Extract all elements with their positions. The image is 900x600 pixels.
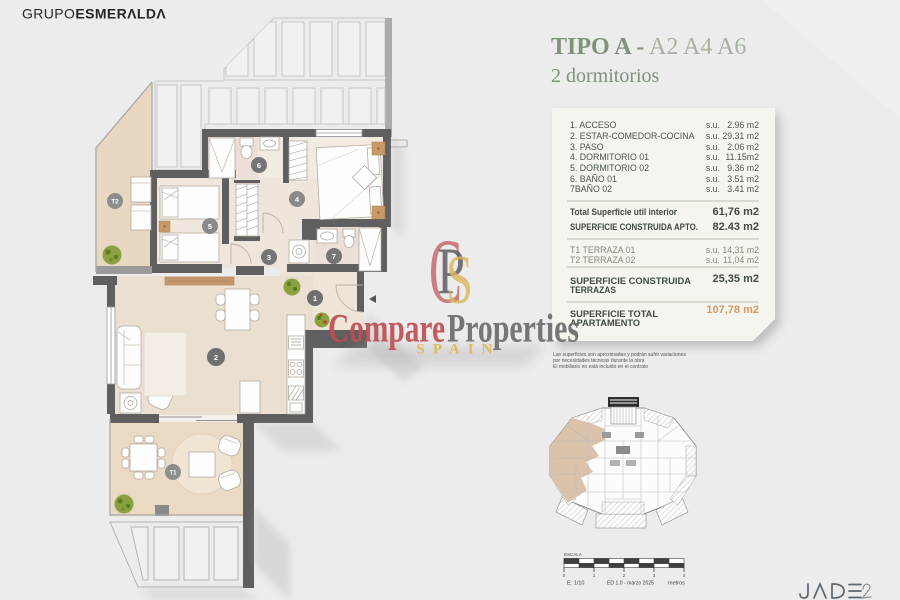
svg-text:7BAÑO 02: 7BAÑO 02 xyxy=(570,184,612,194)
svg-text:s.u.: s.u. xyxy=(706,142,720,152)
svg-text:2. ESTAR-COMEDOR-COCINA: 2. ESTAR-COMEDOR-COCINA xyxy=(570,131,695,141)
svg-text:2 dormitorios: 2 dormitorios xyxy=(551,65,660,87)
svg-text:s.u.: s.u. xyxy=(706,245,720,255)
svg-text:6: 6 xyxy=(257,161,261,170)
svg-text:5: 5 xyxy=(208,222,212,231)
svg-text:82.43 m2: 82.43 m2 xyxy=(713,221,759,233)
svg-text:T1: T1 xyxy=(169,470,177,477)
svg-text:ESCALA: ESCALA xyxy=(564,552,582,557)
svg-text:APARTAMENTO: APARTAMENTO xyxy=(570,318,640,329)
svg-text:4. DORMITORIO 01: 4. DORMITORIO 01 xyxy=(570,152,649,162)
svg-text:s.u.: s.u. xyxy=(706,152,720,162)
svg-text:El mobiliario no está incluido: El mobiliario no está incluido en el con… xyxy=(553,364,648,370)
svg-text:5. DORMITORIO 02: 5. DORMITORIO 02 xyxy=(570,163,649,173)
svg-text:11,04 m2: 11,04 m2 xyxy=(723,255,759,265)
svg-text:s.u.: s.u. xyxy=(706,120,720,130)
svg-text:6. BAÑO 01: 6. BAÑO 01 xyxy=(570,174,617,184)
svg-text:11.15m2: 11.15m2 xyxy=(725,152,759,162)
svg-text:2.06 m2: 2.06 m2 xyxy=(727,142,759,152)
svg-text:Total Superficie util interior: Total Superficie util interior xyxy=(570,207,677,218)
svg-text:TERRAZAS: TERRAZAS xyxy=(570,285,616,296)
svg-text:2.96 m2: 2.96 m2 xyxy=(727,120,759,130)
svg-text:1: 1 xyxy=(313,294,317,303)
svg-text:s.u.: s.u. xyxy=(706,174,720,184)
svg-text:A2 A4 A6: A2 A4 A6 xyxy=(649,34,746,60)
svg-text:TIPO A -: TIPO A - xyxy=(551,34,644,60)
svg-text:14,31 m2: 14,31 m2 xyxy=(722,245,759,255)
svg-text:61,76 m2: 61,76 m2 xyxy=(713,206,759,218)
svg-text:T2: T2 xyxy=(111,199,119,206)
svg-text:SUPERFICIE CONSTRUIDA APTO.: SUPERFICIE CONSTRUIDA APTO. xyxy=(570,222,698,233)
svg-text:3. PASO: 3. PASO xyxy=(570,142,604,152)
svg-text:s.u.: s.u. xyxy=(706,163,720,173)
svg-text:ED 1.0 - marzo 2025: ED 1.0 - marzo 2025 xyxy=(607,581,654,587)
svg-text:T2 TERRAZA 02: T2 TERRAZA 02 xyxy=(570,255,635,265)
svg-text:7: 7 xyxy=(332,252,336,261)
svg-text:metros: metros xyxy=(668,581,685,587)
svg-text:E: 1/10: E: 1/10 xyxy=(567,581,584,587)
svg-text:9.36 m2: 9.36 m2 xyxy=(727,163,759,173)
svg-text:3.41 m2: 3.41 m2 xyxy=(727,184,759,194)
svg-text:25,35 m2: 25,35 m2 xyxy=(713,273,759,285)
svg-text:29.31 m2: 29.31 m2 xyxy=(722,131,759,141)
svg-text:s.u.: s.u. xyxy=(706,184,720,194)
svg-text:2: 2 xyxy=(214,353,218,362)
svg-text:SPAIN: SPAIN xyxy=(417,342,501,358)
svg-text:107,78 m2: 107,78 m2 xyxy=(706,304,759,316)
svg-text:s.u.: s.u. xyxy=(706,131,720,141)
svg-text:GRUPOESMERΛLDΛ: GRUPOESMERΛLDΛ xyxy=(22,6,166,22)
svg-text:3.51 m2: 3.51 m2 xyxy=(727,174,759,184)
svg-text:3: 3 xyxy=(267,253,271,262)
svg-text:T1 TERRAZA 01: T1 TERRAZA 01 xyxy=(570,245,635,255)
svg-text:s.u.: s.u. xyxy=(706,255,720,265)
svg-text:1. ACCESO: 1. ACCESO xyxy=(570,120,617,130)
